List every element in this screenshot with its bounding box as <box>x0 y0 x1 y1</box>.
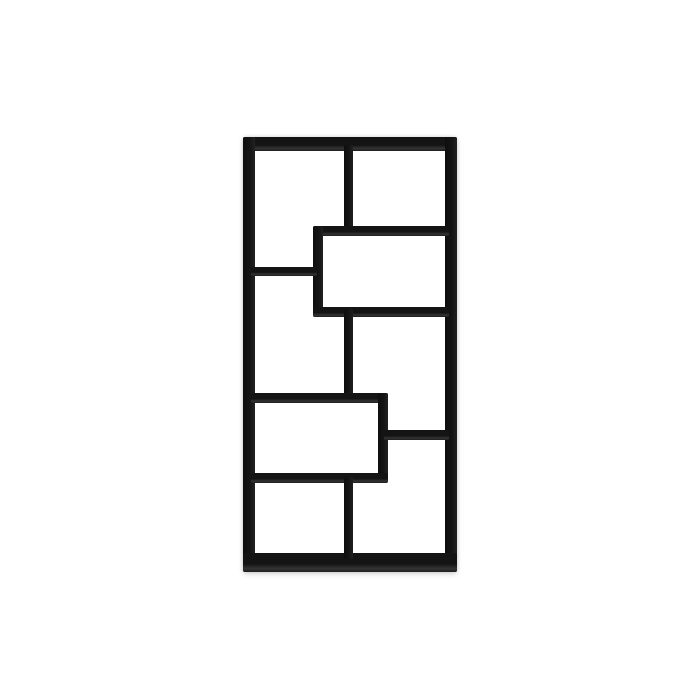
divider-lower <box>344 477 353 559</box>
frame-right <box>445 137 457 572</box>
product-image-canvas <box>0 0 700 700</box>
shelf-right <box>384 430 449 440</box>
divider-middle <box>344 309 353 400</box>
shelf-left <box>251 267 317 276</box>
frame-left <box>243 137 255 572</box>
bookshelf <box>243 137 457 572</box>
lower-box-bottom <box>251 473 388 483</box>
upper-box-bottom <box>313 307 449 317</box>
upper-box-top <box>313 226 449 236</box>
divider-upper <box>344 145 353 236</box>
lower-box-top <box>251 393 388 403</box>
